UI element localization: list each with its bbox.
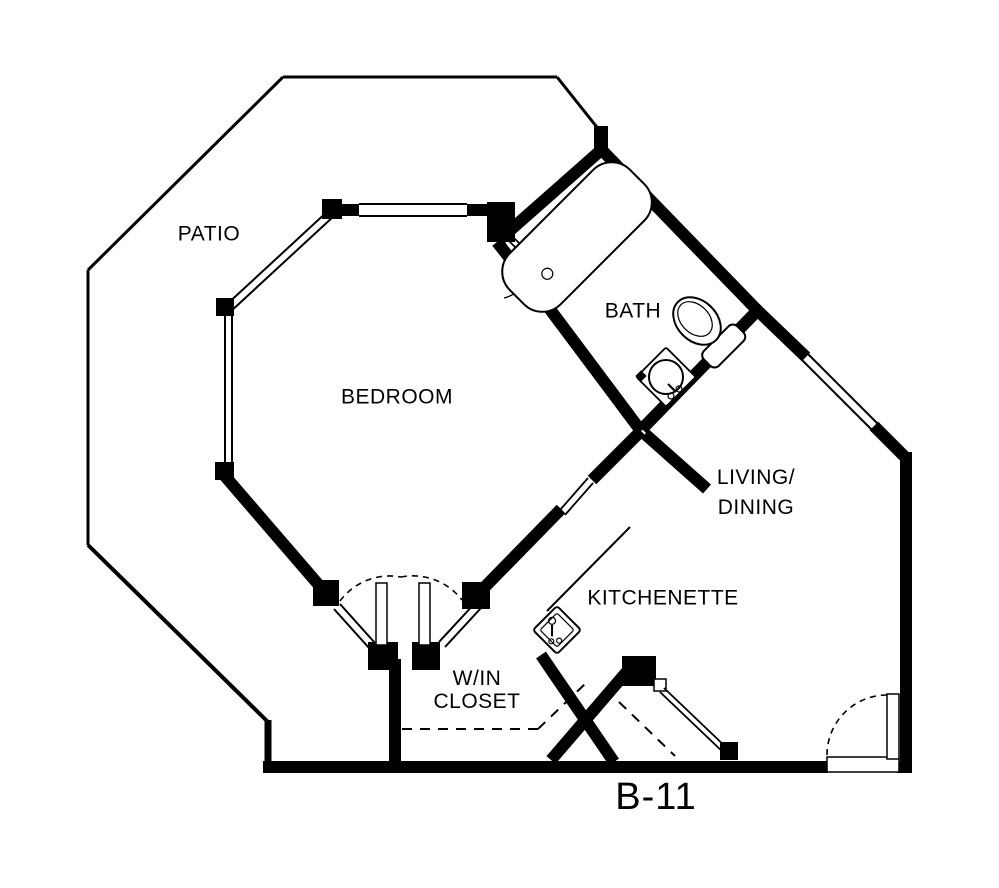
bedroom-label: BEDROOM <box>341 386 453 409</box>
living-dining-line2: DINING <box>717 493 795 523</box>
closet-line1: W/IN <box>433 667 520 690</box>
closet-door-leaf-left <box>376 583 387 645</box>
patio-label: PATIO <box>178 223 240 246</box>
living-dining-label: LIVING/ DINING <box>717 463 795 523</box>
bedroom-west-window <box>225 313 232 463</box>
patio-boundary <box>88 77 604 765</box>
walk-in-closet-label: W/IN CLOSET <box>433 667 520 713</box>
door-swing-arc <box>340 576 401 601</box>
floor-plan: PATIO BEDROOM BATH LIVING/ DINING KITCHE… <box>0 0 999 888</box>
kitchen-sink <box>533 606 581 654</box>
bath-label: BATH <box>605 300 661 323</box>
floor-plan-drawing <box>0 0 999 888</box>
door-swing-arc <box>827 695 887 755</box>
entry-closet-door <box>654 679 738 760</box>
closet-line2: CLOSET <box>433 690 520 713</box>
hall-opening <box>560 478 593 515</box>
plan-id-label: B-11 <box>615 777 696 817</box>
entry-door <box>827 694 899 772</box>
bedroom-northwest-window <box>224 210 334 313</box>
closet-door-leaf-right <box>419 583 430 645</box>
bathroom-sink <box>635 347 695 406</box>
entry-door-leaf <box>887 694 899 759</box>
living-dining-line1: LIVING/ <box>717 463 795 493</box>
kitchenette-label: KITCHENETTE <box>587 587 738 610</box>
door-swing-arc <box>401 576 462 600</box>
closet-corner-block <box>622 656 656 686</box>
living-northeast-window <box>800 352 879 431</box>
bedroom-top-window <box>359 204 467 216</box>
